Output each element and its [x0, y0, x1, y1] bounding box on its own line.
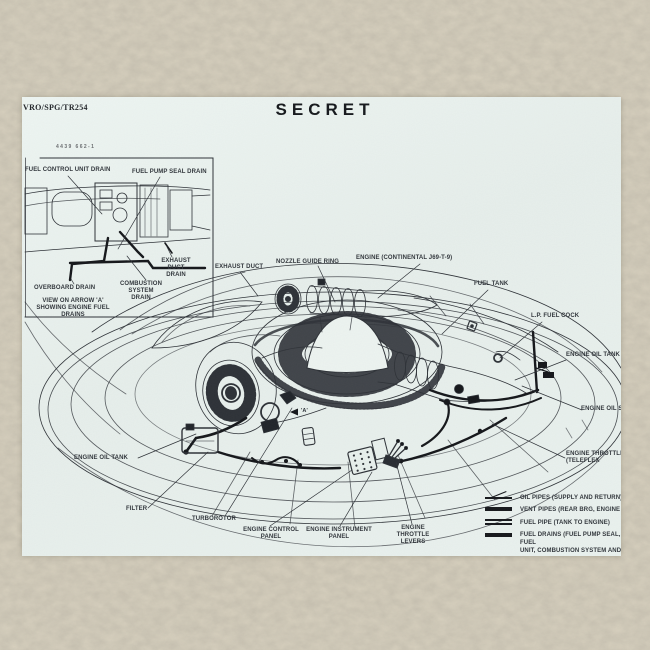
label-fuel-tank: FUEL TANK: [474, 281, 508, 288]
label-engine-instrument-panel: ENGINE INSTRUMENT PANEL: [305, 527, 373, 541]
legend-text-fuel-drains: FUEL DRAINS (FUEL PUMP SEAL, FUEL UNIT, …: [520, 531, 621, 556]
label-engine-throttle-levers: ENGINE THROTTLE LEVERS: [384, 525, 442, 547]
label-exhaust-duct: EXHAUST DUCT: [215, 264, 263, 271]
label-lp-fuel-cock: L.P. FUEL COCK: [531, 313, 579, 320]
legend-symbol-vent-pipes: [485, 507, 512, 511]
label-engine-control-panel: ENGINE CONTROL PANEL: [241, 527, 301, 541]
legend-symbol-fuel-pipe: [485, 519, 512, 525]
inset-caption: VIEW ON ARROW 'A' SHOWING ENGINE FUEL DR…: [28, 298, 118, 320]
label-engine-oil-tank-right: ENGINE OIL TANK: [566, 352, 620, 359]
legend-symbol-fuel-drains: [485, 533, 512, 537]
arrow-a-label: 'A': [301, 408, 308, 415]
legend-symbol-oil-pipes: [485, 497, 512, 499]
legend-text-fuel-pipe: FUEL PIPE (TANK TO ENGINE): [520, 519, 610, 527]
photographed-secret-document: VRO/SPG/TR254 SECRET 4439 662-1: [0, 0, 650, 650]
label-filter: FILTER: [126, 506, 147, 513]
label-fuel-control-unit-drain: FUEL CONTROL UNIT DRAIN: [25, 167, 110, 174]
legend-text-oil-pipes: OIL PIPES (SUPPLY AND RETURN): [520, 494, 621, 502]
document-page: VRO/SPG/TR254 SECRET 4439 662-1: [22, 97, 621, 556]
label-engine-continental: ENGINE (CONTINENTAL J69-T-9): [356, 255, 452, 262]
label-exhaust-duct-drain: EXHAUST DUCT DRAIN: [152, 258, 200, 280]
cutaway-diagram: [22, 97, 621, 556]
label-engine-throttle-teleflex: ENGINE THROTTLE (TELEFLEX: [566, 451, 621, 465]
label-overboard-drain: OVERBOARD DRAIN: [34, 285, 95, 292]
label-turborotor: TURBOROTOR: [192, 516, 236, 523]
label-engine-oil-tank-left: ENGINE OIL TANK: [74, 455, 128, 462]
page-content: VRO/SPG/TR254 SECRET 4439 662-1: [22, 97, 621, 556]
legend-text-vent-pipes: VENT PIPES (REAR BRG, ENGINE AN: [520, 506, 621, 514]
label-engine-oil-st: ENGINE OIL ST: [581, 406, 621, 413]
label-fuel-pump-seal-drain: FUEL PUMP SEAL DRAIN: [132, 169, 207, 176]
label-nozzle-guide-ring: NOZZLE GUIDE RING: [276, 259, 339, 266]
